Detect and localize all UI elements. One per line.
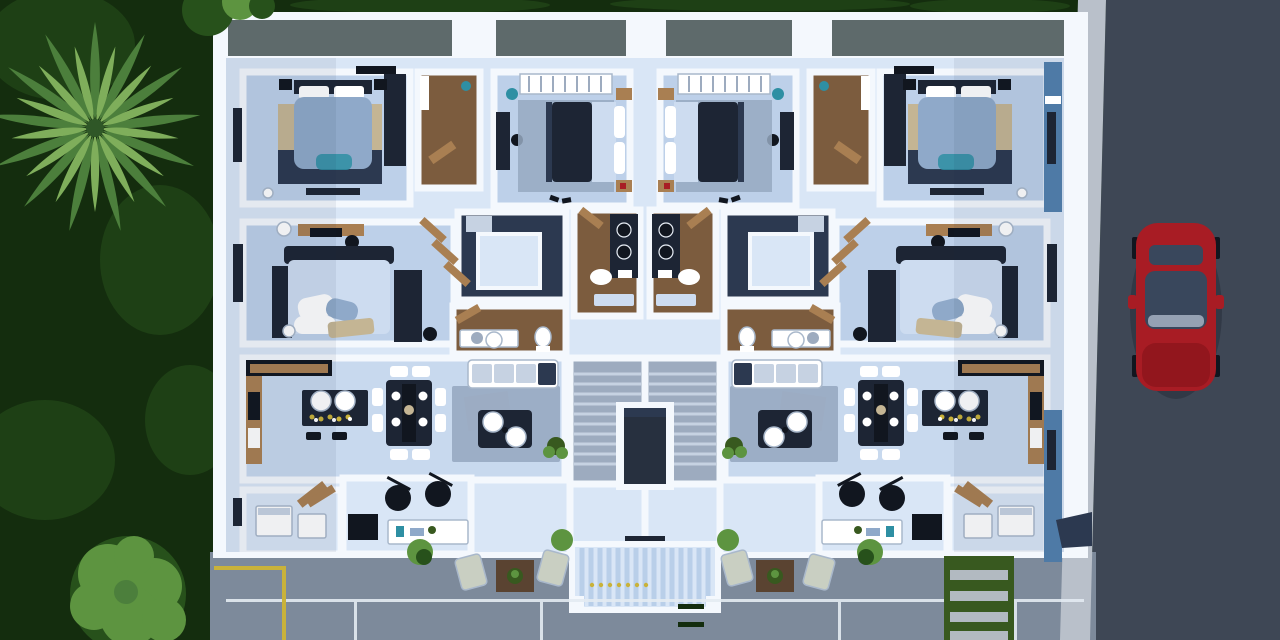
- stool: [590, 269, 612, 285]
- centerpiece: [404, 405, 414, 415]
- basin: [617, 223, 631, 237]
- light-shade-left: [226, 58, 336, 552]
- pillow: [614, 142, 625, 174]
- car-rear-window: [1149, 245, 1203, 265]
- bath-mat: [594, 294, 634, 306]
- duvet-dark: [552, 102, 592, 182]
- basin: [617, 245, 631, 259]
- tray: [483, 412, 503, 432]
- living-area: [452, 360, 568, 462]
- canopy-slats: [582, 548, 708, 606]
- canopy-post: [706, 596, 716, 610]
- pillow: [614, 106, 625, 138]
- car-hood: [1142, 343, 1210, 387]
- red-car: [1128, 223, 1224, 399]
- bush: [551, 529, 573, 551]
- wall-shelf: [356, 66, 396, 74]
- floor-plan-scene: [0, 0, 1280, 640]
- nightstand: [616, 88, 632, 100]
- car-mirror: [1215, 295, 1224, 309]
- elevator-shaft: [624, 408, 666, 484]
- tray: [506, 427, 526, 447]
- side-rug: [394, 270, 422, 342]
- pendant-light: [335, 391, 355, 411]
- duvet-light: [592, 102, 616, 182]
- cone-lamp: [385, 485, 411, 511]
- aerial-render: [0, 0, 1280, 640]
- blue-vase: [461, 81, 471, 91]
- wardrobe: [384, 74, 406, 166]
- cone-lamp: [425, 481, 451, 507]
- round-sink: [486, 332, 502, 348]
- desk: [496, 112, 510, 170]
- window: [1047, 430, 1056, 470]
- car-mirror: [1128, 295, 1137, 309]
- storage-box: [466, 216, 492, 232]
- shower-tray: [478, 234, 540, 288]
- nightstand: [374, 79, 387, 90]
- sink: [471, 332, 483, 344]
- window: [1047, 112, 1056, 164]
- stove: [348, 514, 378, 540]
- corner-item: [423, 327, 437, 341]
- toilet: [535, 327, 551, 347]
- potted-plant: [506, 88, 518, 100]
- sofa-cushions: [472, 364, 536, 383]
- canopy-post: [574, 596, 584, 610]
